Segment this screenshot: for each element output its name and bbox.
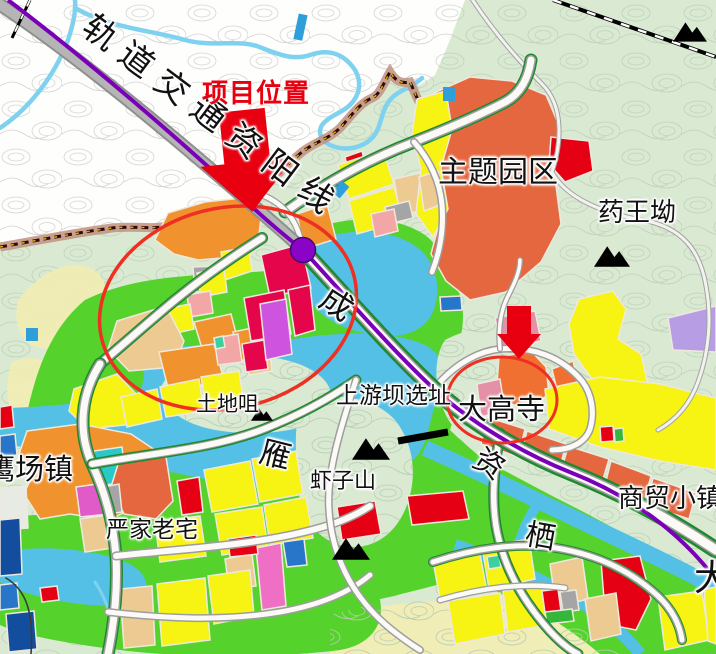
- planning-map: 轨道交通资阳线 项目位置 主题园区 药王坳 成 上游坝选址 大高寺 土地咀 雁 …: [0, 0, 716, 654]
- label-trade-town: 商贸小镇: [618, 486, 716, 512]
- label-yaowangao: 药王坳: [598, 200, 676, 226]
- map-canvas: [0, 0, 716, 654]
- label-da: 大: [694, 560, 716, 596]
- label-project-location: 项目位置: [202, 80, 310, 106]
- label-dagaosi: 大高寺: [458, 396, 545, 425]
- label-upstream-dam: 上游坝选址: [336, 384, 451, 407]
- label-qi: 栖: [523, 520, 558, 555]
- label-yingchangzhen: 鹰场镇: [0, 456, 73, 485]
- label-theme-park: 主题园区: [438, 158, 558, 188]
- metro-station-dot: [291, 238, 316, 263]
- label-xiazishan: 虾子山: [310, 470, 376, 492]
- label-yanjialaozhai: 严家老宅: [106, 518, 198, 541]
- label-tudizui: 土地咀: [196, 394, 259, 415]
